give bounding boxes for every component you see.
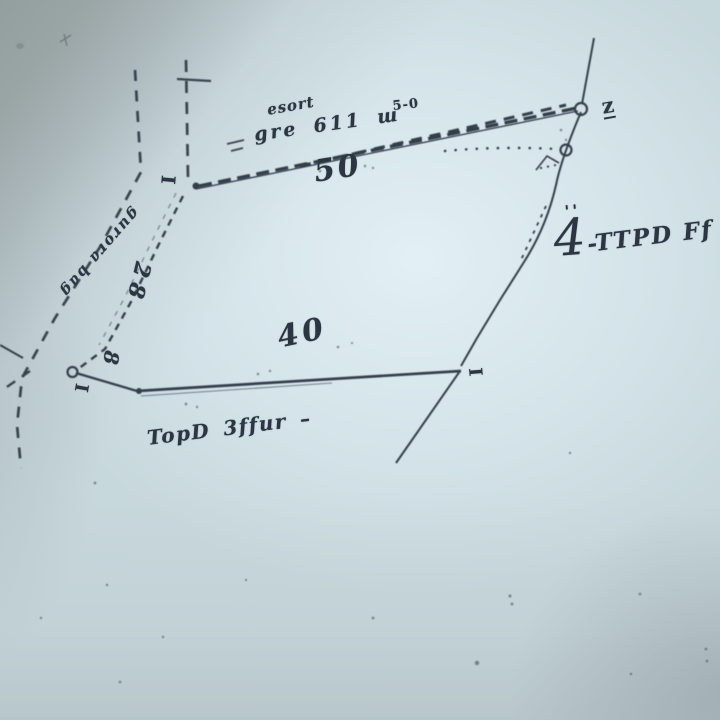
handwritten-labels-layer: esort 5-0 gre 611 ш 50 40 28 8 gurora ba… (0, 0, 720, 720)
dimension-top-side: 50 (312, 151, 364, 188)
dimension-left-side: 28 (122, 260, 154, 307)
corner-mark-nw: I (157, 174, 177, 185)
corner-mark-sw: I (71, 382, 90, 393)
right-annotation-numeral: 4 (552, 212, 587, 264)
dimension-bottom-side: 40 (275, 314, 330, 354)
corner-mark-se: I (465, 367, 484, 377)
corner-mark-ne: z (600, 94, 616, 120)
right-annotation-handwriting: -TTPD Ff (586, 218, 714, 256)
photographed-survey-sketch: esort 5-0 gre 611 ш 50 40 28 8 gurora ba… (0, 0, 720, 720)
top-small-note-handwriting: esort (266, 95, 316, 118)
dimension-left-side-small: 8 (100, 350, 122, 366)
bottom-annotation-handwriting: TopD 3ffur – (146, 408, 313, 448)
